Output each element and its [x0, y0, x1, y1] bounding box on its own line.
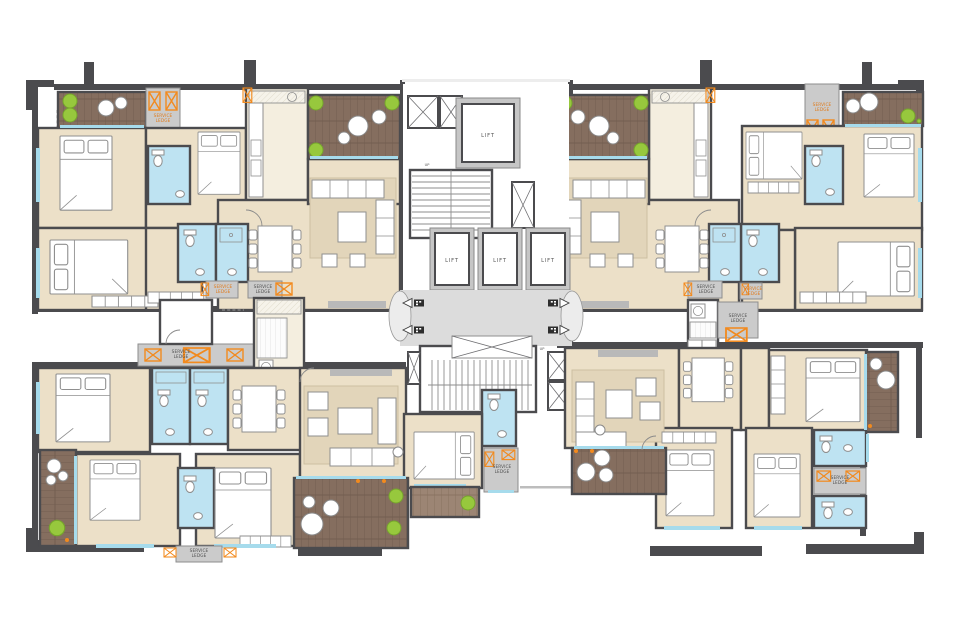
sofa [576, 382, 594, 432]
plant-icon [901, 109, 915, 123]
plant-icon [309, 96, 323, 110]
svg-text:LEDGE: LEDGE [495, 469, 510, 474]
armchair [308, 418, 328, 436]
floor-plan: SERVICE LEDGE SERVICE LEDGE SERVICE LEDG… [0, 0, 957, 625]
svg-text:LEDGE: LEDGE [174, 354, 189, 359]
bed [215, 468, 271, 538]
sofa [378, 398, 396, 444]
bed [838, 242, 914, 296]
lift: LIFT [456, 98, 520, 168]
dining-table [249, 226, 301, 272]
armchair [640, 402, 660, 420]
staircase: UP [410, 163, 492, 238]
bed [806, 358, 860, 422]
armchair [636, 378, 656, 396]
tv-console [328, 301, 386, 308]
svg-text:LEDGE: LEDGE [216, 289, 231, 294]
dining-table [656, 226, 708, 272]
basin-icon [176, 191, 185, 198]
wing-bottom-right: SERVICE LEDGE [565, 348, 898, 530]
up-label: UP [425, 163, 431, 167]
round-table [98, 100, 114, 116]
dining-table [233, 386, 285, 432]
plant-icon [63, 94, 77, 108]
corridor [741, 348, 769, 430]
plant-icon [385, 96, 399, 110]
sofa [330, 448, 394, 466]
bed [56, 374, 110, 442]
svg-text:LEDGE: LEDGE [815, 107, 830, 112]
svg-text:UP: UP [540, 347, 546, 351]
wardrobe [748, 182, 799, 193]
bed [90, 460, 140, 520]
wing-top-right: SERVICE LEDGE SERVICE LEDGE SERVICE LEDG… [557, 84, 923, 350]
plant-icon [63, 108, 77, 122]
coffee-table [606, 390, 632, 418]
lift: LIFT [430, 228, 474, 290]
bed [746, 132, 802, 179]
sofa [376, 200, 394, 254]
wing-top-left: SERVICE LEDGE SERVICE LEDGE SERVICE LEDG… [36, 88, 400, 390]
lift: LIFT [478, 228, 522, 290]
svg-text:LEDGE: LEDGE [746, 291, 761, 296]
lift: LIFT [526, 228, 570, 290]
bed [60, 136, 112, 210]
svg-text:LEDGE: LEDGE [256, 289, 271, 294]
bed [198, 132, 240, 194]
coffee-table [338, 212, 366, 242]
bed [414, 432, 474, 479]
plant-icon [309, 143, 323, 157]
bed [754, 454, 800, 517]
bed [864, 134, 914, 197]
svg-text:LEDGE: LEDGE [699, 289, 714, 294]
dining-table [683, 358, 732, 402]
wardrobe [800, 292, 866, 303]
svg-text:LIFT: LIFT [541, 258, 555, 264]
wing-bottom-left: SERVICE LEDGE [36, 368, 482, 562]
svg-text:LEDGE: LEDGE [731, 318, 746, 323]
bed [50, 240, 128, 294]
service-ledge-label: LEDGE [156, 118, 171, 123]
svg-text:LIFT: LIFT [445, 258, 459, 264]
wardrobe [662, 432, 716, 443]
svg-text:LEDGE: LEDGE [192, 553, 207, 558]
svg-text:LIFT: LIFT [493, 258, 507, 264]
coffee-table [338, 408, 372, 434]
washer-icon [691, 304, 705, 318]
lift-label: LIFT [481, 133, 495, 139]
armchair [308, 392, 328, 410]
bed [666, 450, 714, 516]
svg-text:LEDGE: LEDGE [833, 480, 848, 485]
round-table [348, 116, 368, 136]
bathroom [814, 496, 866, 528]
